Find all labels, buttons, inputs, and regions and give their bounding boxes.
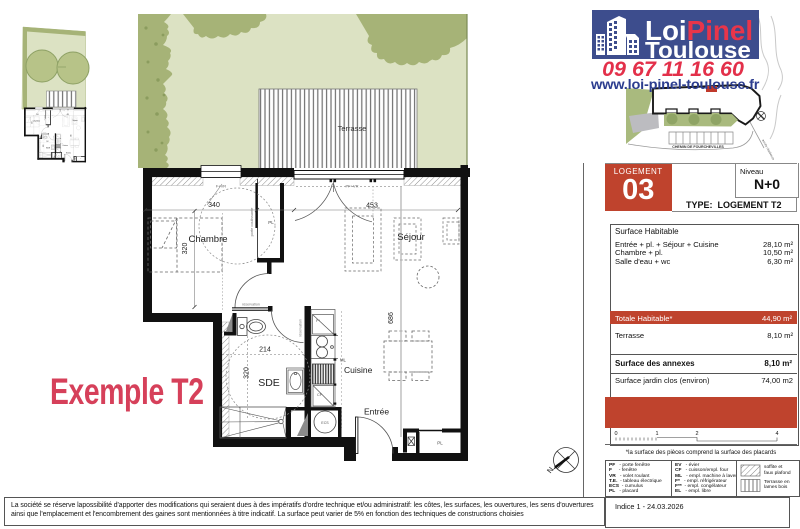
svg-text:SDE: SDE bbox=[258, 377, 280, 389]
svg-text:F+VR: F+VR bbox=[216, 184, 226, 189]
svg-text:686: 686 bbox=[388, 312, 395, 324]
svg-text:PF+VR: PF+VR bbox=[345, 184, 358, 189]
svg-text:PL: PL bbox=[268, 220, 274, 225]
svg-text:453: 453 bbox=[366, 203, 378, 210]
svg-text:2: 2 bbox=[695, 431, 698, 437]
svg-text:0: 0 bbox=[614, 431, 617, 437]
svg-text:CHEMIN DE FOURCHEVILLES: CHEMIN DE FOURCHEVILLES bbox=[672, 145, 724, 149]
svg-text:Séjour: Séjour bbox=[397, 232, 424, 243]
svg-text:4: 4 bbox=[775, 431, 778, 437]
svg-text:CF: CF bbox=[317, 393, 323, 397]
svg-text:214: 214 bbox=[259, 347, 271, 354]
svg-text:réservation: réservation bbox=[242, 303, 260, 307]
svg-text:Terrasse: Terrasse bbox=[338, 124, 367, 133]
svg-text:N: N bbox=[545, 465, 555, 475]
svg-text:Cuisine: Cuisine bbox=[344, 365, 373, 375]
svg-text:ECS: ECS bbox=[321, 421, 329, 425]
svg-text:accès résidence: accès résidence bbox=[761, 139, 775, 161]
svg-text:PL: PL bbox=[437, 441, 443, 446]
svg-text:F*: F* bbox=[316, 319, 320, 323]
svg-text:320: 320 bbox=[244, 367, 251, 379]
svg-text:340: 340 bbox=[208, 202, 220, 209]
svg-text:1: 1 bbox=[655, 431, 658, 437]
svg-text:ML: ML bbox=[340, 358, 346, 363]
svg-text:porte coulissante: porte coulissante bbox=[250, 208, 254, 237]
svg-text:Chambre: Chambre bbox=[188, 234, 227, 245]
svg-text:réservation: réservation bbox=[299, 319, 303, 337]
svg-text:Entrée: Entrée bbox=[364, 407, 389, 417]
